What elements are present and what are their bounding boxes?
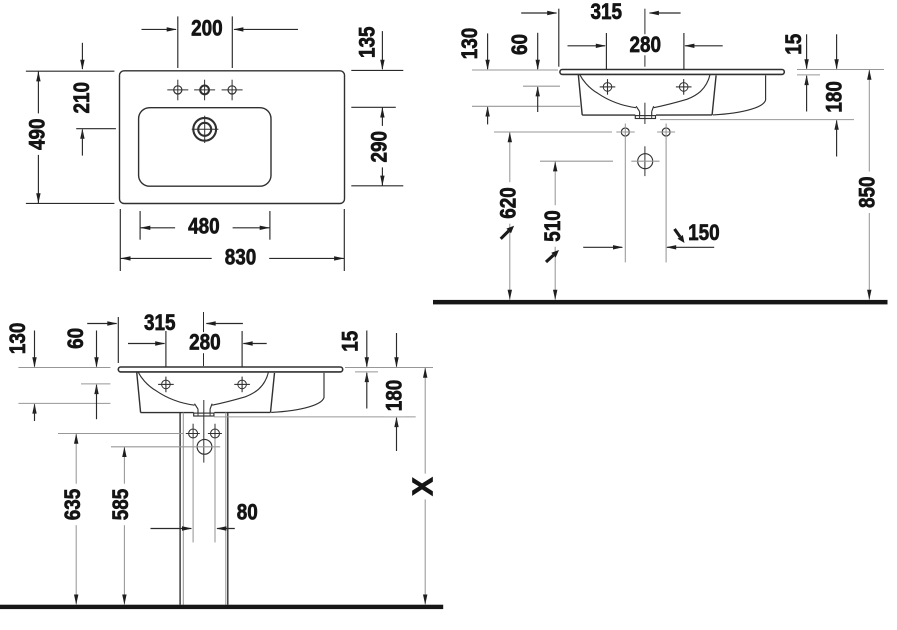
svg-text:280: 280 xyxy=(189,330,221,355)
svg-text:510: 510 xyxy=(541,210,566,242)
svg-text:280: 280 xyxy=(629,32,661,57)
svg-text:585: 585 xyxy=(109,489,134,521)
svg-text:210: 210 xyxy=(70,82,95,114)
svg-text:490: 490 xyxy=(25,118,50,150)
svg-text:290: 290 xyxy=(367,131,392,163)
svg-text:60: 60 xyxy=(508,34,533,55)
svg-text:150: 150 xyxy=(688,221,720,246)
svg-text:130: 130 xyxy=(458,28,483,60)
svg-text:200: 200 xyxy=(191,16,223,41)
svg-text:830: 830 xyxy=(225,245,257,270)
svg-text:635: 635 xyxy=(61,489,86,521)
svg-text:850: 850 xyxy=(855,177,880,209)
svg-text:130: 130 xyxy=(6,323,31,355)
svg-text:15: 15 xyxy=(781,34,806,55)
svg-text:X: X xyxy=(407,477,439,496)
svg-text:60: 60 xyxy=(64,328,89,349)
svg-text:315: 315 xyxy=(144,310,176,335)
svg-text:620: 620 xyxy=(496,187,521,219)
svg-text:480: 480 xyxy=(188,214,220,239)
svg-text:180: 180 xyxy=(822,81,847,113)
svg-text:80: 80 xyxy=(237,500,258,525)
svg-text:15: 15 xyxy=(338,331,363,352)
svg-text:180: 180 xyxy=(382,380,407,412)
svg-text:315: 315 xyxy=(591,0,623,24)
svg-text:135: 135 xyxy=(355,26,380,58)
